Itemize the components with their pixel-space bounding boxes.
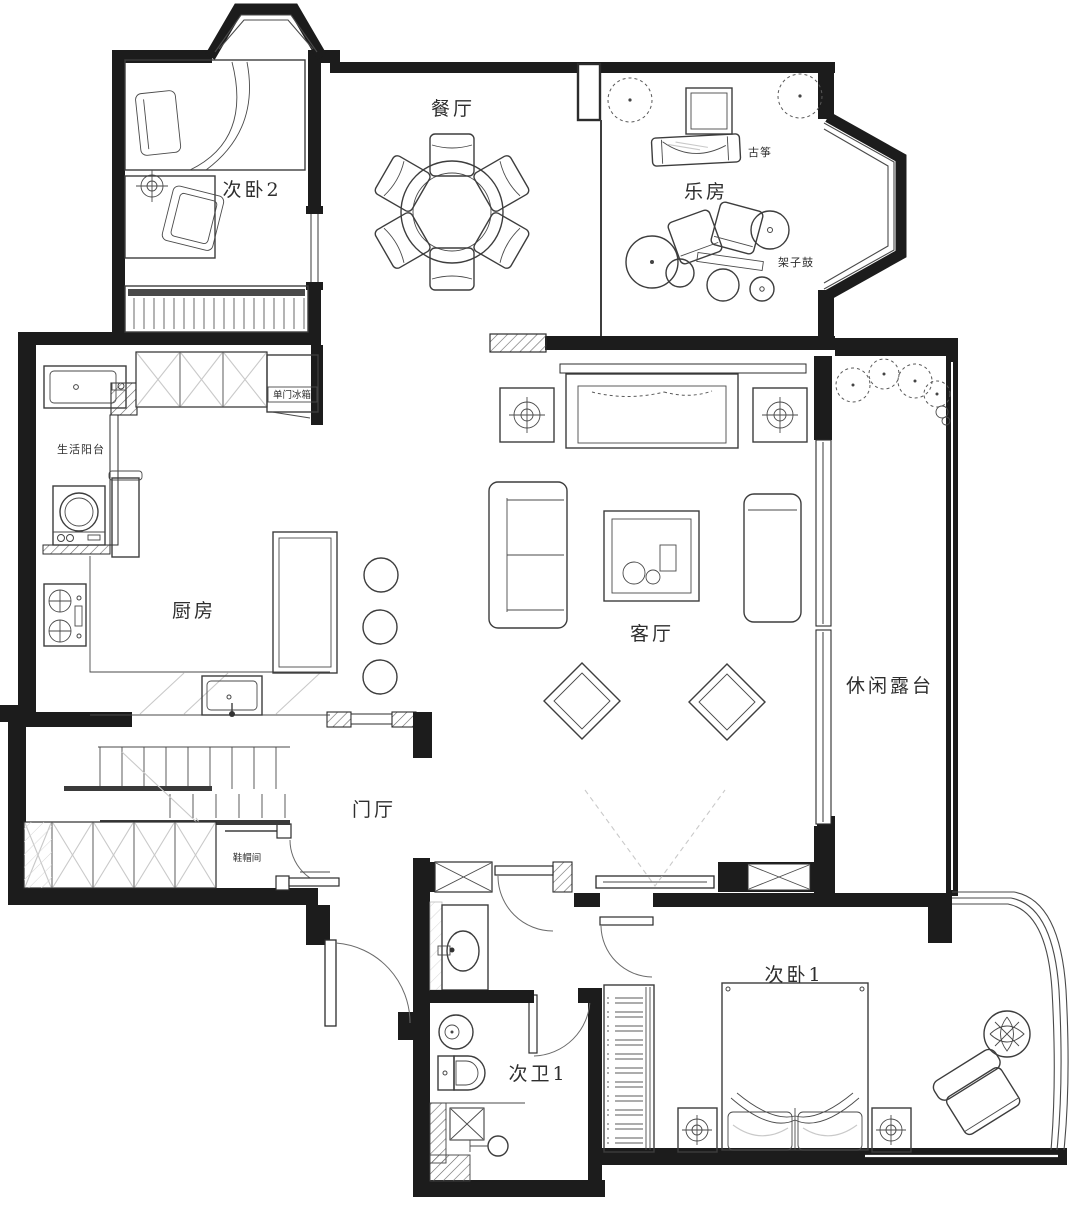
room-label-living-room: 客厅 (630, 623, 674, 645)
gas-stove (44, 584, 86, 646)
floor-plan-canvas: 单门冰箱 (0, 0, 1080, 1205)
floor-mark (585, 790, 725, 886)
hatched-pier (327, 712, 351, 727)
coffee-table (604, 511, 699, 601)
dining-chairs (373, 134, 530, 290)
side-table-lamp (753, 388, 807, 442)
shower (430, 1103, 525, 1181)
bar-stools (363, 558, 398, 694)
ottoman-diamond (544, 663, 620, 739)
plant-pot (984, 1011, 1030, 1057)
room-label-bathroom1: 次卫1 (508, 1063, 567, 1085)
ceiling-lamp-icon (136, 170, 168, 202)
room-label-terrace: 休闲露台 (846, 675, 934, 697)
bathroom-door (495, 866, 553, 931)
bedroom1-door (600, 917, 653, 977)
floor-plan-drawing: 单门冰箱 (0, 0, 1080, 1205)
room-label-service-balcony: 生活阳台 (57, 442, 105, 456)
hatched-pier (553, 862, 572, 892)
nightstand-lamp (678, 1108, 717, 1152)
drum-kit (626, 201, 789, 301)
window-bedroom2 (306, 206, 323, 290)
wardrobe-bedroom2 (125, 286, 308, 332)
bed-bedroom1 (722, 983, 868, 1150)
desk-bedroom2 (125, 176, 225, 258)
room-label-music-room: 乐房 (684, 181, 728, 203)
room-label-bedroom1: 次卧1 (764, 964, 823, 986)
cloakroom-door (276, 872, 339, 890)
staircase (64, 747, 290, 830)
hatched-pier (392, 712, 416, 727)
round-basin (439, 1015, 473, 1049)
dining-table (373, 134, 530, 290)
room-label-cloakroom: 鞋帽间 (233, 852, 262, 864)
vanity (430, 902, 488, 990)
sofa (489, 482, 567, 628)
side-table-lamp (500, 388, 554, 442)
wardrobe-bedroom1 (604, 985, 654, 1152)
room-label-bedroom2: 次卧2 (222, 179, 281, 201)
kitchen-island (273, 532, 337, 673)
shoe-cabinet (24, 822, 216, 888)
chaise (744, 494, 801, 622)
hatched-pier (43, 545, 110, 554)
bed-bedroom2 (125, 60, 305, 170)
guzheng (651, 134, 740, 167)
annotation-guzheng: 古筝 (748, 145, 772, 159)
kitchen-sink (202, 676, 262, 717)
bathroom-partition (430, 990, 534, 1003)
hatched-pier (490, 334, 546, 352)
room-label-kitchen: 厨房 (172, 600, 216, 622)
sofa-back-console (566, 374, 738, 448)
toilet (438, 1056, 485, 1090)
annotation-drum-kit: 架子鼓 (778, 255, 814, 269)
stool-table (686, 88, 732, 134)
ottoman-diamond (689, 664, 765, 740)
plant-icon (608, 74, 822, 122)
bathroom-pier (578, 988, 594, 1003)
washing-machine (53, 486, 105, 545)
nightstand-lamp (872, 1108, 911, 1152)
fridge-label: 单门冰箱 (273, 389, 311, 401)
fridge: 单门冰箱 (267, 355, 318, 418)
entry-door (325, 940, 410, 1026)
armchair (930, 1046, 1025, 1138)
shelf-line (560, 364, 806, 373)
room-label-dining: 餐厅 (431, 98, 475, 120)
bay-window-music-room (828, 117, 901, 295)
kitchen-counter (90, 556, 330, 715)
inner-bathroom-door (529, 995, 590, 1056)
kitchen-cabinets (136, 352, 267, 407)
room-label-foyer: 门厅 (352, 799, 396, 821)
bay-window-bedroom2 (210, 9, 322, 57)
terrace-plants (836, 359, 950, 425)
column (578, 64, 600, 120)
